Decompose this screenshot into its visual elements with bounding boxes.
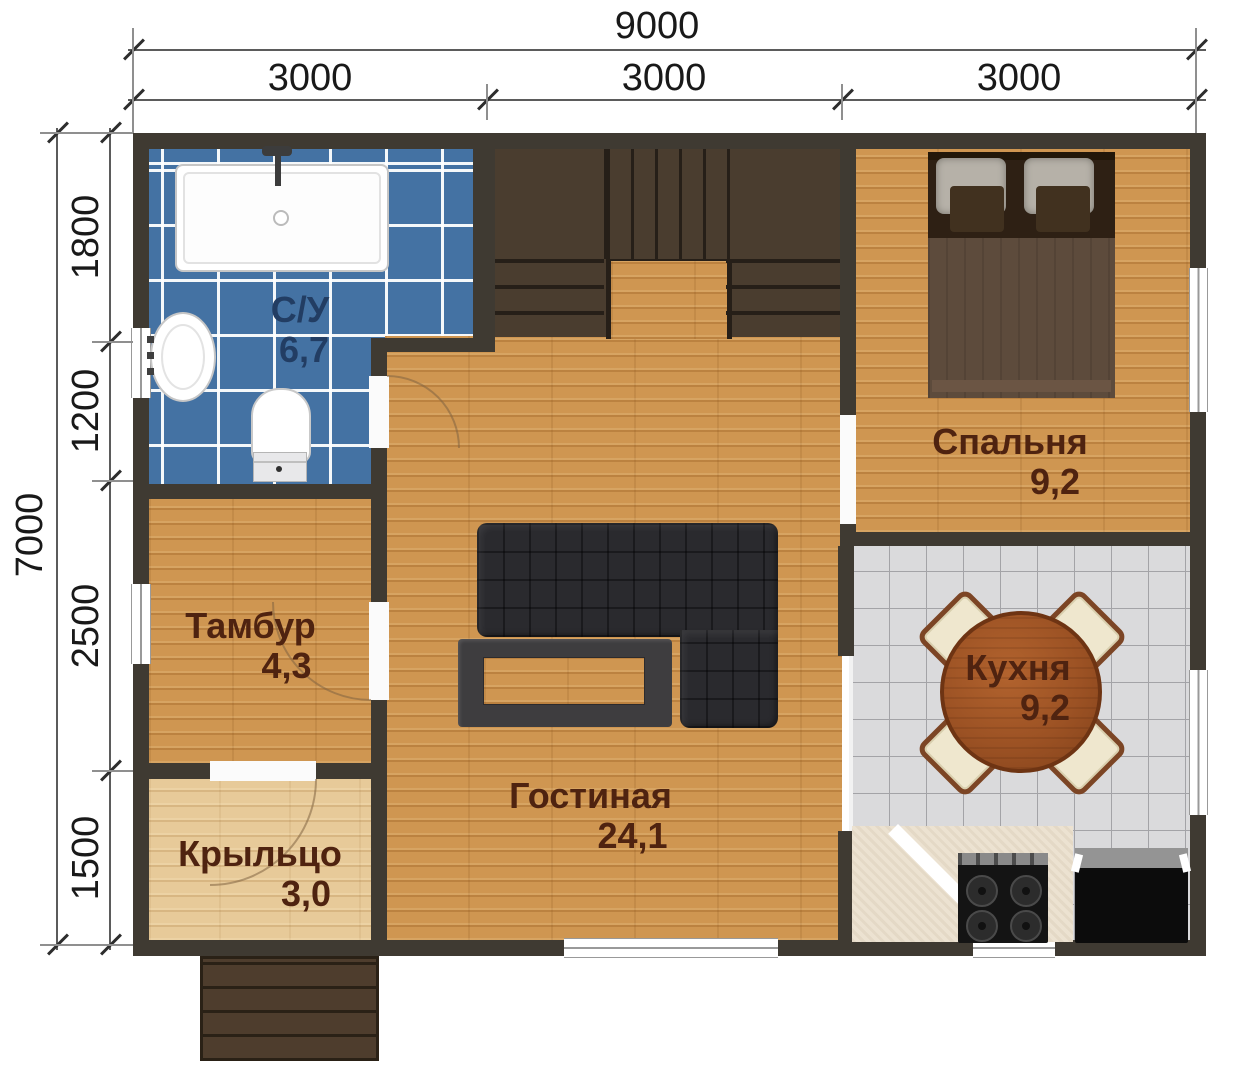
stove-burner-3 (966, 910, 998, 942)
dim-left-seg-4: 1500 (66, 758, 106, 958)
bathroom-area: 6,7 (234, 330, 374, 370)
sink-tap-dot-2 (147, 352, 154, 359)
label-vestibule: Тамбур 4,3 (178, 606, 323, 686)
stove-control-panel (958, 853, 1048, 865)
dim-ext (1195, 28, 1197, 133)
stove-burner-4 (1010, 910, 1042, 942)
toilet-flush-button (276, 466, 282, 472)
bedroom-name: Спальня (932, 421, 1088, 462)
dim-top-overall: 9000 (557, 6, 757, 46)
dim-ext (486, 84, 488, 120)
bed-blanket (928, 238, 1115, 398)
dim-top-seg-3: 3000 (919, 58, 1119, 98)
kitchen-passage-threshold (849, 656, 853, 831)
dim-line-left-segments (109, 128, 111, 950)
living-room-name: Гостиная (509, 775, 672, 816)
wall-exterior-left (133, 133, 149, 956)
dim-line-top-segments (128, 99, 1206, 101)
living-room-area: 24,1 (540, 816, 725, 856)
vestibule-area: 4,3 (214, 646, 359, 686)
wall-bathroom-right (473, 149, 495, 352)
sink-tap-dot-3 (147, 368, 154, 375)
wall-vestibule-bottom-left (133, 763, 210, 779)
dim-top-seg-1: 3000 (210, 58, 410, 98)
dim-top-seg-2: 3000 (564, 58, 764, 98)
kitchen-area: 9,2 (965, 688, 1125, 728)
wall-bedroom-bottom (840, 532, 1190, 546)
bed-blanket-edge (932, 380, 1111, 392)
sink-basin (161, 324, 205, 390)
bed (928, 152, 1115, 398)
dim-line-top-overall (128, 49, 1206, 51)
floor-plan: С/У 6,7 Спальня 9,2 Кухня 9,2 Гостиная 2… (0, 0, 1242, 1080)
entrance-steps (200, 956, 379, 1061)
wall-exterior-right (1190, 133, 1206, 956)
coffee-table-opening (483, 657, 645, 705)
bathroom-name: С/У (271, 289, 329, 330)
staircase-flight (604, 149, 730, 259)
wall-bathroom-notch (371, 338, 495, 352)
bathtub (175, 164, 389, 272)
coffee-table (458, 639, 672, 727)
door-bathroom (369, 376, 389, 448)
wall-exterior-top (133, 133, 1206, 149)
staircase-steps-left (495, 255, 604, 337)
wall-bedroom-left-top (840, 149, 856, 415)
vestibule-name: Тамбур (185, 605, 316, 646)
label-living-room: Гостиная 24,1 (498, 776, 683, 856)
stove-burner-1 (966, 875, 998, 907)
dim-left-seg-1: 1800 (66, 137, 106, 337)
wall-bathroom-door-stub-bottom (371, 448, 387, 486)
label-porch: Крыльцо 3,0 (175, 834, 345, 914)
dim-ext (92, 480, 133, 482)
window-vestibule (131, 584, 151, 664)
stove (958, 853, 1048, 943)
dim-ext (92, 341, 133, 343)
dim-ext (841, 84, 843, 120)
dim-left-overall: 7000 (10, 435, 50, 635)
porch-name: Крыльцо (178, 833, 342, 874)
sink-unit-top-band (1075, 848, 1188, 868)
wall-vestibule-bottom-right (316, 763, 387, 779)
kitchen-sink-unit (1075, 848, 1188, 943)
wall-vestibule-right-bottom (371, 700, 387, 763)
staircase-landing (606, 259, 732, 339)
dim-ext (40, 132, 133, 134)
bed-throw-right (1036, 186, 1090, 232)
dim-left-seg-3: 2500 (66, 526, 106, 726)
door-vestibule-porch (210, 761, 316, 781)
bed-throw-left (950, 186, 1004, 232)
dim-ext (92, 770, 133, 772)
wall-bathroom-bottom (133, 484, 387, 499)
label-bathroom: С/У 6,7 (230, 290, 370, 370)
window-bedroom (1189, 268, 1208, 412)
staircase-steps-right (726, 255, 840, 337)
bathtub-drain (273, 210, 289, 226)
kitchen-name: Кухня (965, 647, 1070, 688)
window-living-room (564, 938, 778, 958)
label-bedroom: Спальня 9,2 (915, 422, 1105, 502)
label-kitchen: Кухня 9,2 (938, 648, 1098, 728)
dim-ext (40, 944, 133, 946)
bedroom-area: 9,2 (960, 462, 1150, 502)
window-kitchen-right (1189, 670, 1208, 815)
bathtub-faucet-stem (275, 154, 281, 186)
dim-line-left-overall (56, 128, 58, 950)
wall-kitchen-left-top (838, 546, 854, 656)
porch-area: 3,0 (221, 874, 391, 914)
door-vestibule-living (369, 602, 389, 700)
sofa-right-arm (680, 630, 778, 728)
dim-ext (132, 28, 134, 133)
sink-tap-dot-1 (147, 336, 154, 343)
stove-burner-2 (1010, 875, 1042, 907)
door-bedroom (840, 415, 856, 524)
sofa-top-arm (477, 523, 778, 637)
wall-vestibule-right-top (371, 499, 387, 602)
sink (150, 312, 216, 402)
wall-porch-right (371, 779, 387, 942)
